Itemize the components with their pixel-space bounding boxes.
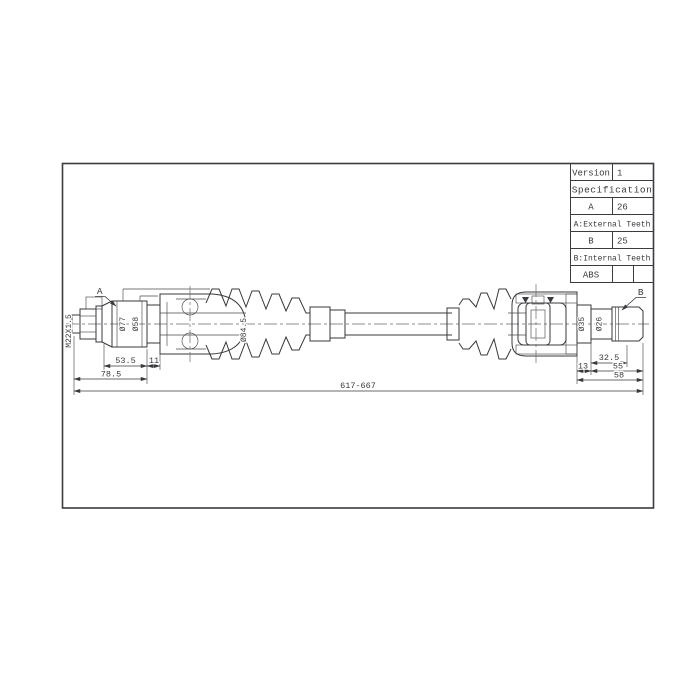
spec-table-a-label: A bbox=[588, 203, 594, 213]
spec-table-a-note: A:External Teeth bbox=[574, 221, 651, 230]
dia-label-58: Ø58 bbox=[132, 317, 141, 332]
spec-table-version-value: 1 bbox=[617, 169, 622, 179]
dimensions-right: 32.5 13 55 58 bbox=[577, 341, 643, 384]
spec-table-header: Specification bbox=[572, 185, 653, 196]
spec-table-b-note: B:Internal Teeth bbox=[574, 255, 651, 264]
dia-label-77: Ø77 bbox=[119, 317, 128, 332]
drawing-sheet: Version 1 Specification A 26 A:External … bbox=[0, 0, 700, 700]
callout-b-label: B bbox=[638, 287, 644, 298]
spec-table-b-label: B bbox=[588, 237, 594, 247]
outer-threaded-stub bbox=[72, 297, 112, 347]
axle-drawing: Ø77 Ø58 Ø84.5 bbox=[65, 284, 649, 395]
thread-spec-label: M22X1.5 bbox=[65, 314, 74, 348]
spec-table-b-value: 25 bbox=[617, 237, 628, 247]
dim-text-11: 11 bbox=[149, 356, 159, 366]
dimension-overall: 617-667 bbox=[74, 343, 643, 395]
dia-label-boot: Ø84.5 bbox=[240, 318, 249, 342]
dim-text-78-5: 78.5 bbox=[101, 370, 121, 380]
callout-a-label: A bbox=[97, 286, 103, 297]
dim-text-overall: 617-667 bbox=[340, 381, 376, 391]
dim-text-13: 13 bbox=[578, 362, 588, 372]
callout-a: A bbox=[95, 286, 116, 306]
spec-table-abs-label: ABS bbox=[583, 271, 599, 281]
outer-joint-neck: Ø77 Ø58 bbox=[112, 289, 210, 347]
cv-axle-technical-drawing: Version 1 Specification A 26 A:External … bbox=[0, 0, 700, 700]
sheet-border bbox=[63, 164, 654, 509]
spec-table-version-label: Version bbox=[572, 169, 610, 179]
dim-text-58: 58 bbox=[614, 371, 624, 381]
spec-table: Version 1 Specification A 26 A:External … bbox=[571, 164, 654, 283]
dia-label-35: Ø35 bbox=[578, 317, 587, 332]
dim-text-53-5: 53.5 bbox=[115, 356, 135, 366]
dia-label-26: Ø26 bbox=[596, 317, 605, 332]
spec-table-a-value: 26 bbox=[617, 203, 628, 213]
